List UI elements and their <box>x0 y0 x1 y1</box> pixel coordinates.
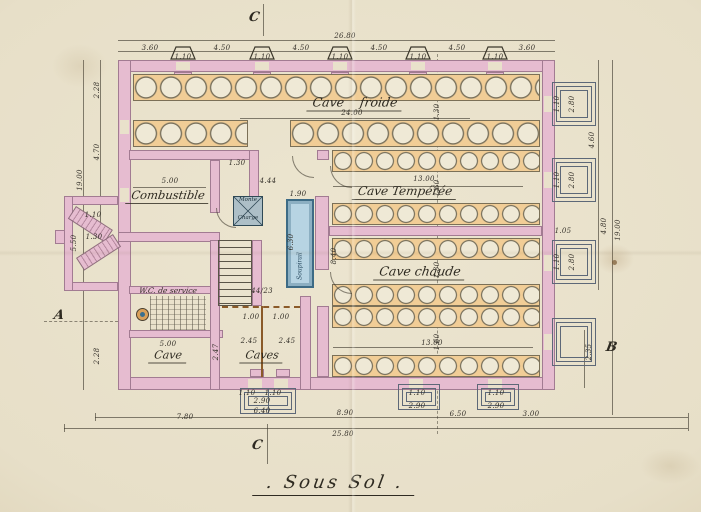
paper-stain <box>640 448 700 484</box>
window-gap <box>488 62 502 70</box>
room-label-cave-chaude: Cave chaude <box>373 264 467 281</box>
window-well <box>552 82 596 126</box>
dimension-line <box>100 60 101 232</box>
wine-bin-row <box>332 238 540 260</box>
section-marker-b: B <box>605 340 619 355</box>
dimension-label: 4.80 <box>600 218 608 235</box>
dimension-label: 5.00 <box>162 177 179 185</box>
wine-bin-row <box>290 120 540 147</box>
dimension-line <box>95 413 96 421</box>
monte-charge-label-bottom: Charge <box>234 215 262 221</box>
dimension-line <box>95 417 688 418</box>
dimension-label: 13.00 <box>421 339 443 347</box>
wall-segment <box>317 306 329 377</box>
window-well <box>552 240 596 284</box>
drawing-title: . Sous Sol . <box>252 472 418 496</box>
window-gap <box>120 120 129 134</box>
wine-bin-row <box>332 355 540 377</box>
buttress <box>276 369 290 377</box>
wall-segment <box>300 296 311 390</box>
wall-segment <box>210 160 220 213</box>
dimension-label: 1.30 <box>229 159 246 167</box>
dimension-label: 1.00 <box>273 313 290 321</box>
dimension-line <box>688 413 689 431</box>
wine-bin-row <box>332 150 540 172</box>
room-label-combustible: Combustible <box>125 188 211 204</box>
dimension-line <box>333 347 533 348</box>
window-gap <box>333 62 347 70</box>
wall-segment <box>329 226 542 236</box>
door-arc <box>216 208 236 228</box>
wall-segment <box>315 196 329 270</box>
fold-crease <box>348 0 356 512</box>
door-arc <box>292 156 314 178</box>
window-gap <box>274 379 288 388</box>
window-gap <box>248 379 262 388</box>
dimension-label: 1.05 <box>555 227 572 235</box>
wood-partition <box>261 306 263 377</box>
wine-bin-row <box>332 306 540 328</box>
vent-trapezoid-icon <box>404 45 432 61</box>
wine-bin-row <box>332 284 540 306</box>
dimension-label: 19.00 <box>614 219 622 241</box>
room-label-cave-temperee: Cave Tempérée <box>352 184 459 200</box>
dimension-line <box>118 40 555 41</box>
wall-segment <box>129 330 223 338</box>
dimension-line <box>64 424 65 432</box>
dimension-label: 1.00 <box>243 313 260 321</box>
section-marker-c-top: C <box>248 10 261 25</box>
window-gap <box>176 62 190 70</box>
wc-floor-grating <box>150 296 206 330</box>
window-well <box>552 318 596 366</box>
room-label-wc: W.C. de service <box>133 286 202 296</box>
wall-segment <box>118 232 220 242</box>
blueprint-paper: Monte Charge Soupirail Cave froide Cave … <box>0 0 701 512</box>
well-divider <box>268 389 269 413</box>
window-well <box>552 158 596 202</box>
room-label-cave: Cave <box>148 349 188 364</box>
wall-segment <box>118 60 131 390</box>
section-line-c <box>267 424 268 464</box>
monte-charge-label-top: Monte <box>234 197 262 203</box>
dimension-label: 4.44 <box>260 177 277 185</box>
window-well <box>240 388 296 414</box>
wine-bin-row <box>133 120 248 147</box>
window-well <box>398 384 440 410</box>
dimension-label: 2.45 <box>279 337 296 345</box>
dimension-label: 4.60 <box>588 132 596 149</box>
dimension-line <box>64 428 688 429</box>
dimension-label: 13.00 <box>413 175 435 183</box>
window-well <box>477 384 519 410</box>
monte-charge-box: Monte Charge <box>233 196 263 226</box>
wall-segment <box>317 150 329 160</box>
light-shaft-label: Soupirail <box>297 252 304 280</box>
room-label-caves: Caves <box>239 349 284 364</box>
vent-trapezoid-icon <box>248 45 276 61</box>
dimension-label: 2.28 <box>93 348 101 365</box>
dimension-label: 5.00 <box>160 340 177 348</box>
fold-crease <box>0 250 701 256</box>
wine-bin-row <box>332 203 540 225</box>
vent-trapezoid-icon <box>481 45 509 61</box>
section-marker-c: C <box>251 438 264 453</box>
wall-segment <box>55 230 65 244</box>
section-line-c-top <box>263 4 264 36</box>
dimension-label: 1.90 <box>290 190 307 198</box>
vent-trapezoid-icon <box>169 45 197 61</box>
wall-segment <box>129 150 259 160</box>
toilet-icon <box>136 308 149 321</box>
dimension-line <box>612 60 613 415</box>
dimension-label: 2.45 <box>241 337 258 345</box>
window-gap <box>411 62 425 70</box>
window-gap <box>255 62 269 70</box>
paper-stain <box>596 244 634 274</box>
